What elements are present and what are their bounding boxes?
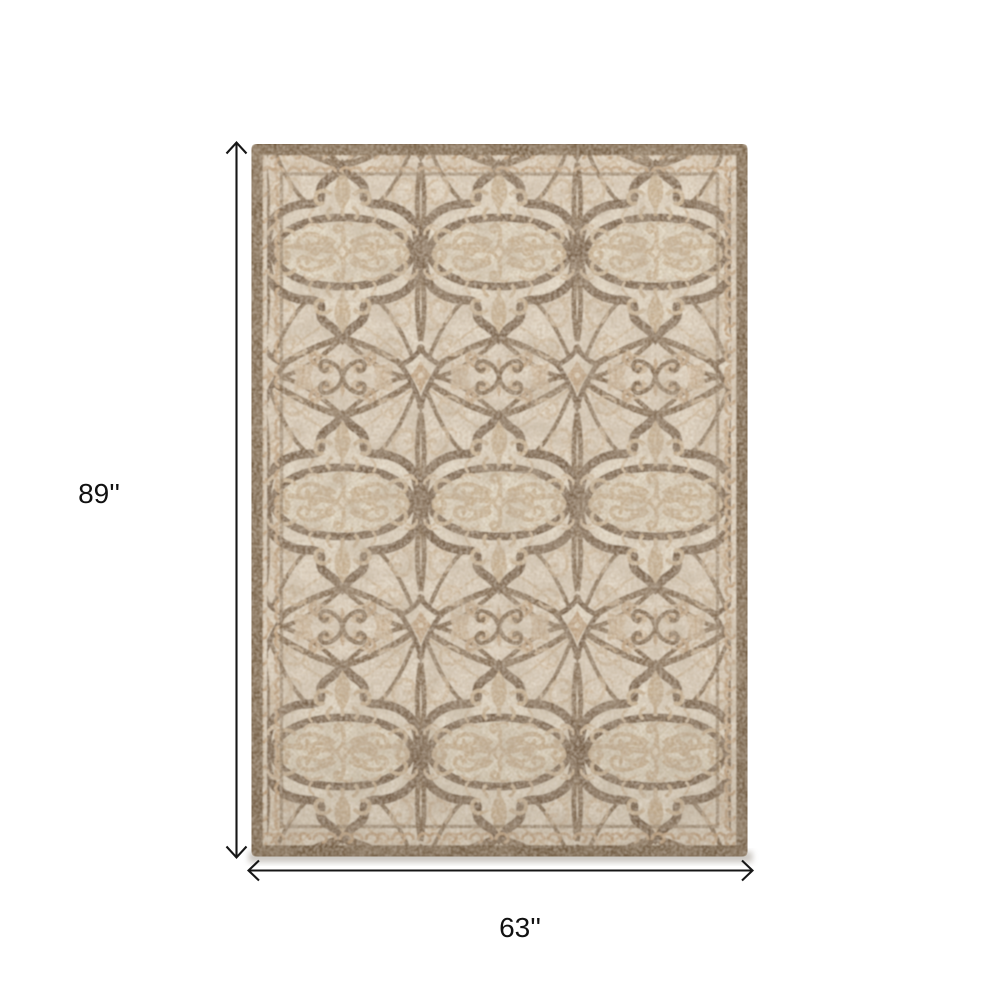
svg-text:89'': 89'' [78,478,120,509]
svg-text:63'': 63'' [499,912,541,943]
